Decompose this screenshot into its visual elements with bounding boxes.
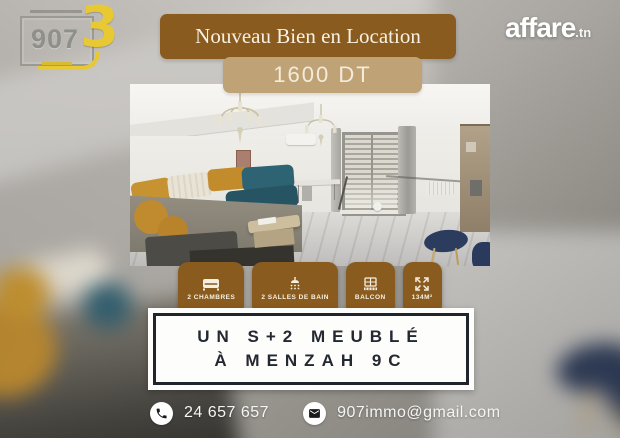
bed-icon (202, 278, 220, 291)
phone-icon (150, 402, 173, 425)
phone-number: 24 657 657 (184, 404, 269, 422)
affare-logo: affare.tn (505, 12, 591, 44)
logo-three: 3 (80, 0, 119, 56)
apartment-photo (130, 84, 490, 266)
mail-icon (303, 402, 326, 425)
badge-label: 134M² (412, 294, 433, 301)
shelf-unit (460, 124, 490, 232)
logo-bottom-bar (42, 62, 72, 65)
headline-text: Nouveau Bien en Location (195, 24, 421, 49)
shower-icon (288, 277, 302, 291)
headline-banner: Nouveau Bien en Location (160, 14, 456, 59)
listing-title-line2: À MENZAH 9C (214, 351, 407, 371)
affare-tld: .tn (575, 25, 591, 40)
listing-title-box: UN S+2 MEUBLÉ À MENZAH 9C (148, 308, 474, 390)
badge-label: BALCON (355, 294, 386, 301)
balcony-icon (363, 277, 378, 291)
badge-label: 2 SALLES DE BAIN (261, 294, 329, 301)
affare-name: affare (505, 12, 575, 43)
chandelier-icon (302, 104, 340, 150)
listing-title-line1: UN S+2 MEUBLÉ (197, 327, 425, 347)
email-contact[interactable]: 907immo@gmail.com (303, 402, 500, 425)
email-address: 907immo@gmail.com (337, 404, 500, 422)
badge-label: 2 CHAMBRES (187, 294, 235, 301)
logo-top-bar (30, 10, 82, 13)
price-text: 1600 DT (273, 62, 371, 88)
area-icon (415, 277, 429, 291)
contact-row: 24 657 657 907immo@gmail.com (130, 398, 525, 428)
phone-contact[interactable]: 24 657 657 (150, 402, 269, 425)
chandelier-icon (212, 86, 268, 148)
price-banner: 1600 DT (223, 57, 422, 93)
agency-logo-907: 907 3 (14, 6, 124, 72)
real-estate-ad-poster: 907 3 affare.tn Nouveau Bien en Location (0, 0, 620, 438)
